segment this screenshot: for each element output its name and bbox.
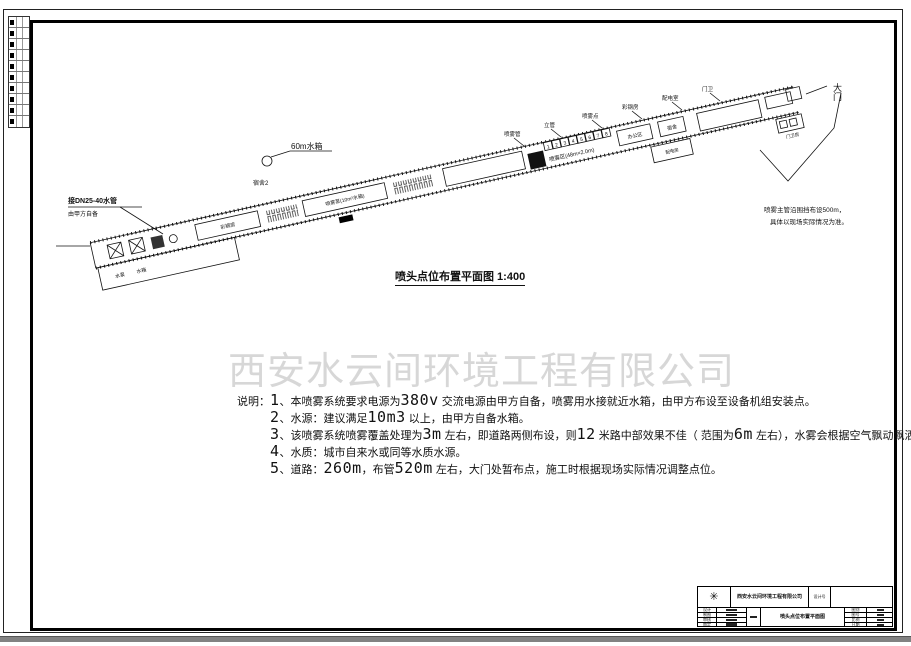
drawing-name: 喷头点位布置平面图: [780, 615, 825, 620]
cad-viewer-screen: 水泵 水箱 彩钢房 喷雾泵(10m³水箱) 1 2 3 4 5 6 7 8: [0, 0, 911, 646]
title-block: ✳ 西安水云间环境工程有限公司 设计号 设计 制图 审核 审定 喷头点位布置平面…: [697, 586, 893, 627]
dorm-label: 宿舍2: [253, 179, 269, 187]
note-line: 4、水质：城市自来水或同等水质水源。: [270, 443, 877, 460]
building-r4-label: 宿舍: [666, 123, 677, 132]
leader-label: 喷雾管: [504, 130, 521, 138]
plan-title: 喷头点位布置平面图 1:400: [395, 268, 525, 286]
water-tank-label: 60m水箱: [291, 141, 323, 151]
design-no-label: 设计号: [814, 595, 826, 599]
comb-row-2: [392, 174, 434, 194]
titleblock-designno-cell: 设计号: [808, 587, 830, 607]
note-line: 5、道路：260m，布管520m 左右，大门处暂布点，施工时根据现场实际情况调整…: [270, 460, 877, 477]
company-logo-icon: ✳: [709, 592, 718, 603]
building-r1-label: 彩钢房: [220, 221, 236, 231]
gate-label: 大门: [832, 82, 842, 102]
tb-left-label: 审定: [698, 622, 716, 626]
block-below-band: [339, 214, 354, 223]
building-r3-label: 办公区: [627, 131, 643, 141]
building-r6: [786, 87, 802, 102]
window-edge-bar: [0, 636, 911, 642]
building-b2-label: 门卫房: [785, 131, 800, 141]
building-r5: [765, 92, 793, 109]
tb-right-label: 日期: [844, 622, 866, 626]
tb-left-value: [716, 622, 746, 626]
leader-label: 立管: [544, 121, 556, 129]
company-name: 西安水云间环境工程有限公司: [737, 595, 802, 600]
inlet-note-line1: 接DN25-40水管: [68, 196, 117, 205]
inlet-note-line2: 由甲方自备: [68, 210, 98, 218]
leader-label: 配电室: [662, 94, 679, 102]
side-note-line1: 喷雾主管沿围挡布设500m，: [764, 205, 845, 214]
comb-row-1: [265, 204, 299, 223]
material-grid-2: [697, 100, 762, 131]
titleblock-logo-cell: ✳: [698, 587, 730, 607]
material-grid-1: [443, 151, 526, 186]
titleblock-blank-cell: [830, 587, 893, 607]
tb-drawing-name-cell: 喷头点位布置平面图: [760, 607, 844, 626]
pump-label: 水泵: [114, 271, 125, 280]
leader-label: 彩钢房: [622, 103, 639, 111]
equipment-block: [150, 235, 164, 249]
leader-label: 喷雾点: [582, 112, 599, 120]
building-b1-label: 配电房: [665, 146, 680, 156]
site-plan: 水泵 水箱 彩钢房 喷雾泵(10m³水箱) 1 2 3 4 5 6 7 8: [0, 0, 911, 340]
tank-label: 水箱: [136, 266, 147, 275]
valve-circle: [169, 234, 179, 244]
water-tank-circle: [262, 156, 272, 166]
leader-label: 门卫: [702, 85, 714, 93]
road-band: 水泵 水箱 彩钢房 喷雾泵(10m³水箱) 1 2 3 4 5 6 7 8: [90, 86, 810, 293]
note-line: 2、水源：建议满足10m3 以上，由甲方自备水箱。: [270, 409, 877, 426]
boundary-wall-top: [806, 86, 827, 94]
equipment-room-block: [527, 151, 546, 170]
company-watermark: 西安水云间环境工程有限公司: [228, 340, 735, 395]
tb-stamp-cell: [746, 607, 760, 626]
notes-block: 说明：1、本喷雾系统要求电源为380v 交流电源由甲方自备，喷雾用水接就近水箱，…: [237, 392, 877, 477]
note-line: 3、该喷雾系统喷雾覆盖处理为3m 左右，即道路两侧布设，则12 米路中部效果不佳…: [270, 426, 877, 443]
titleblock-company-cell: 西安水云间环境工程有限公司: [730, 587, 808, 607]
tb-right-value: [866, 622, 893, 626]
side-note-line2: 具体以现场实际情况为准。: [770, 217, 848, 226]
inlet-leader: [120, 207, 163, 234]
note-line: 说明：1、本喷雾系统要求电源为380v 交流电源由甲方自备，喷雾用水接就近水箱，…: [237, 392, 877, 409]
boundary-wall-right: [760, 93, 841, 181]
